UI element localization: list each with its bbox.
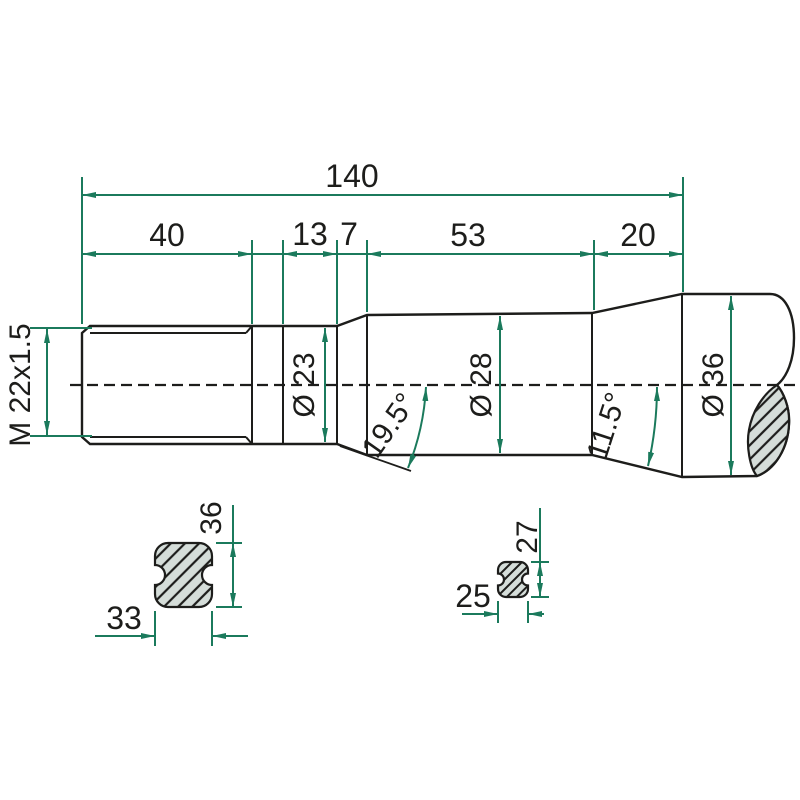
- dim-label-7: 7: [340, 216, 358, 252]
- section-large-height-label: 36: [195, 501, 228, 534]
- dim-label-dia28: Ø 28: [465, 352, 498, 417]
- dim-label-53: 53: [450, 217, 486, 253]
- technical-drawing-page: 140 40 13 7 53 20 M 22x1.5 Ø 23 Ø 28 Ø 3…: [0, 0, 800, 800]
- dim-label-thread: M 22x1.5: [4, 323, 37, 446]
- dim-label-140: 140: [325, 158, 378, 194]
- drawing-canvas: 140 40 13 7 53 20 M 22x1.5 Ø 23 Ø 28 Ø 3…: [0, 0, 800, 800]
- dim-label-dia36: Ø 36: [697, 352, 730, 417]
- section-large-width-label: 33: [106, 600, 142, 636]
- dim-label-20: 20: [620, 217, 656, 253]
- section-small-height-label: 27: [511, 520, 544, 553]
- dim-label-dia23: Ø 23: [288, 352, 321, 417]
- dim-label-13: 13: [292, 216, 328, 252]
- dim-label-40: 40: [149, 217, 185, 253]
- section-small-width-label: 25: [455, 578, 491, 614]
